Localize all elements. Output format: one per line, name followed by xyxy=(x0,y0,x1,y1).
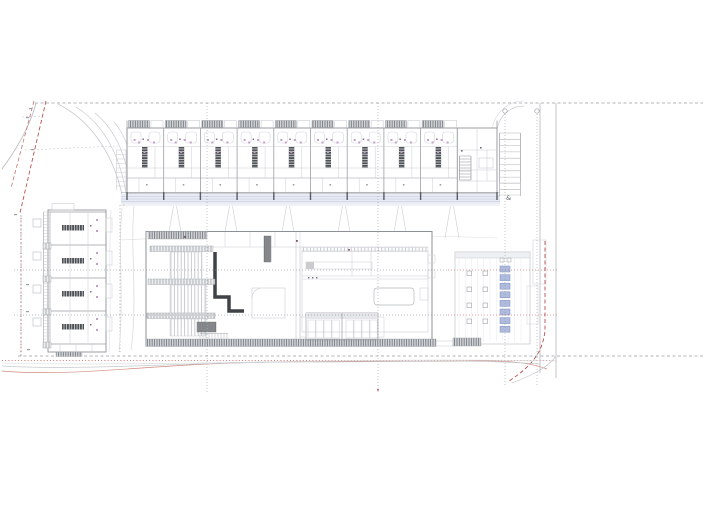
site-plan-canvas: & xyxy=(0,0,705,528)
top-rowhouse-building xyxy=(117,121,498,194)
contour-lines xyxy=(2,356,556,383)
west-rowhouse-building xyxy=(33,204,112,357)
east-stair-parking xyxy=(500,133,521,196)
drawing-page: & xyxy=(0,0,705,528)
accessible-parking-label: & xyxy=(506,194,511,202)
walkway-strip xyxy=(121,192,500,204)
survey-markers xyxy=(14,108,34,350)
garden-pavilion xyxy=(453,252,530,346)
courtyard-paths xyxy=(109,205,134,352)
